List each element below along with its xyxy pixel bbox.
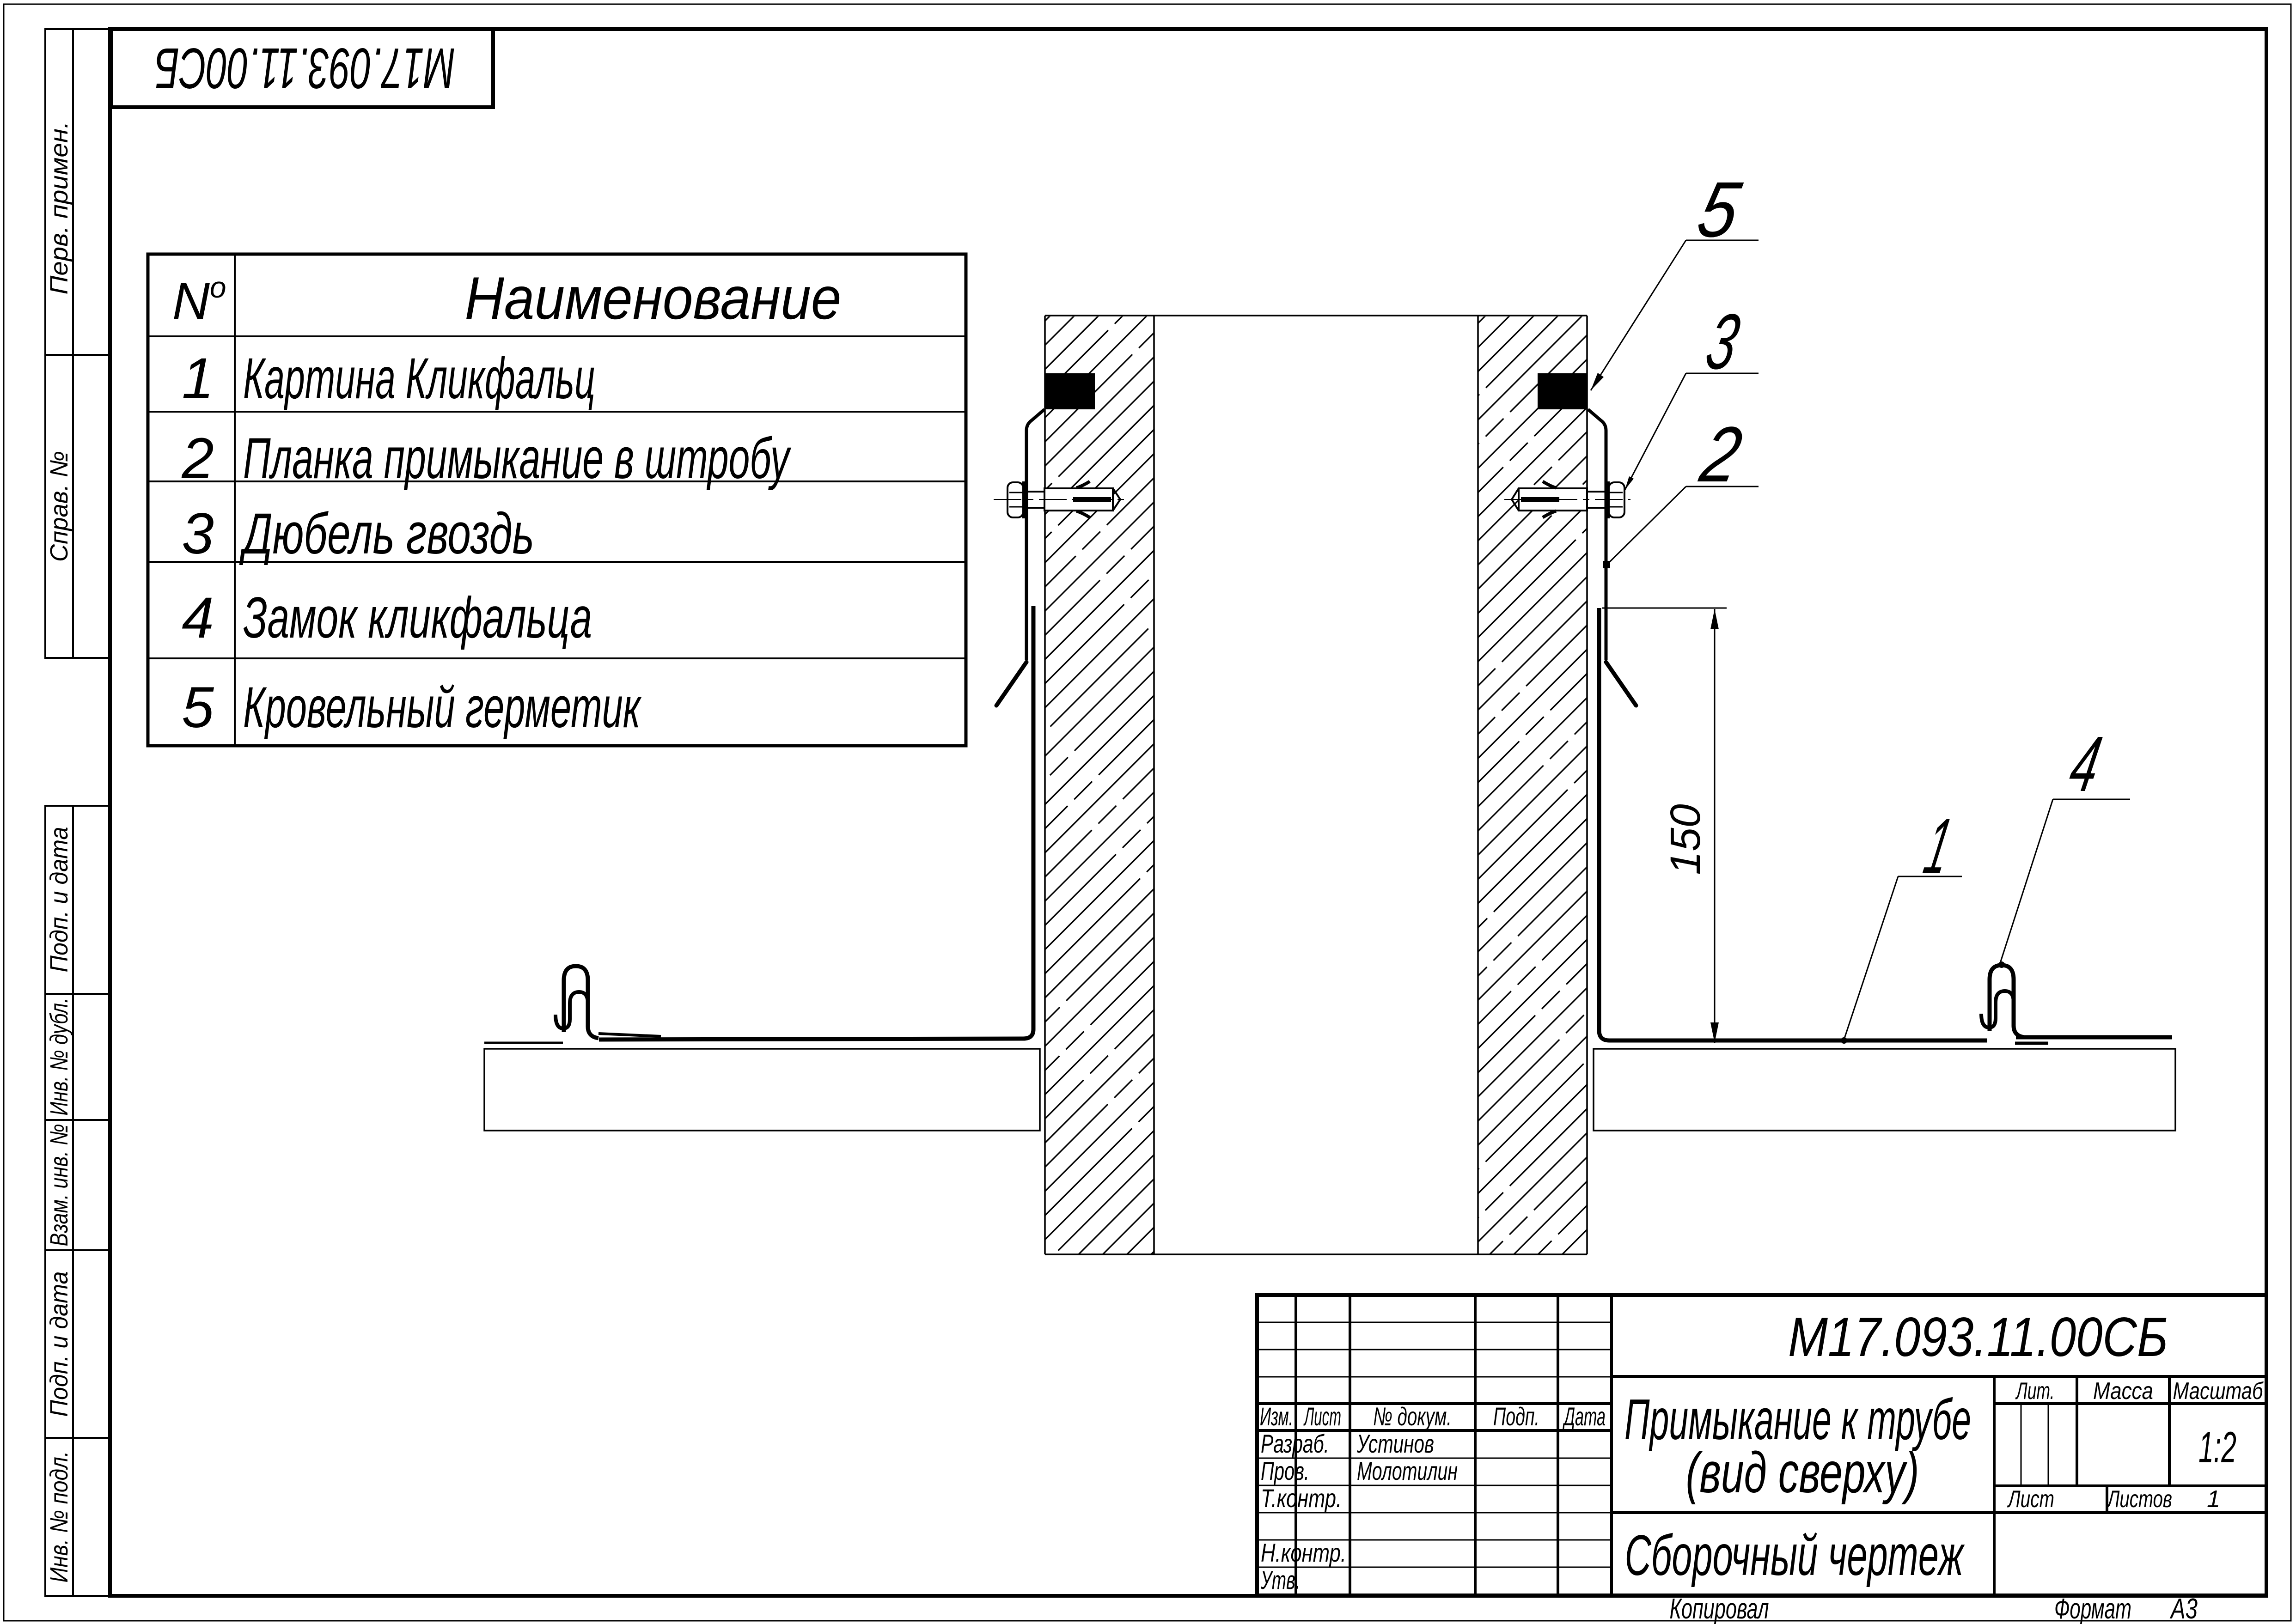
svg-text:4: 4	[182, 586, 214, 650]
svg-text:Дата: Дата	[1562, 1402, 1606, 1431]
svg-text:Масса: Масса	[2093, 1378, 2153, 1405]
svg-text:Лит.: Лит.	[2015, 1378, 2054, 1405]
svg-text:Листов: Листов	[2107, 1486, 2172, 1513]
svg-text:1:2: 1:2	[2198, 1423, 2236, 1472]
svg-text:А3: А3	[2169, 1593, 2198, 1624]
svg-text:Подп. и дата: Подп. и дата	[45, 827, 73, 973]
svg-text:Картина Кликфальц: Картина Кликфальц	[243, 347, 595, 411]
svg-text:Изм.: Изм.	[1260, 1402, 1293, 1431]
svg-text:Пров.: Пров.	[1261, 1456, 1309, 1485]
svg-text:1: 1	[2207, 1486, 2220, 1513]
svg-text:Лист: Лист	[1303, 1402, 1341, 1431]
svg-text:Подп.: Подп.	[1493, 1402, 1539, 1431]
svg-text:Взам. инв. №: Взам. инв. №	[45, 1124, 73, 1247]
svg-text:1: 1	[182, 347, 214, 411]
svg-text:Сборочный чертеж: Сборочный чертеж	[1625, 1524, 1965, 1588]
svg-text:Масштаб: Масштаб	[2173, 1378, 2264, 1405]
svg-text:Лист: Лист	[2007, 1486, 2054, 1513]
svg-text:Замок кликфальца: Замок кликфальца	[243, 586, 592, 650]
svg-text:Молотилин: Молотилин	[1357, 1456, 1458, 1485]
svg-text:М17.093.11.00СБ: М17.093.11.00СБ	[155, 36, 455, 100]
svg-text:Инв. № подл.: Инв. № подл.	[45, 1451, 73, 1583]
svg-text:Утв.: Утв.	[1260, 1565, 1300, 1594]
svg-text:Справ. №: Справ. №	[45, 451, 73, 562]
svg-text:Устинов: Устинов	[1356, 1429, 1434, 1458]
svg-text:Подп. и дата: Подп. и дата	[45, 1271, 73, 1417]
svg-text:Т.контр.: Т.контр.	[1261, 1484, 1342, 1513]
svg-text:Дюбель гвоздь: Дюбель гвоздь	[239, 502, 534, 566]
svg-text:Формат: Формат	[2054, 1593, 2131, 1624]
svg-text:Копировал: Копировал	[1670, 1593, 1769, 1624]
svg-text:3: 3	[182, 502, 214, 566]
svg-text:Инв. № дубл.: Инв. № дубл.	[45, 998, 73, 1116]
svg-text:Н.контр.: Н.контр.	[1261, 1538, 1346, 1567]
svg-text:Кровельный герметик: Кровельный герметик	[243, 675, 642, 740]
svg-text:Перв. примен.: Перв. примен.	[45, 122, 73, 295]
svg-text:М17.093.11.00СБ: М17.093.11.00СБ	[1788, 1306, 2168, 1368]
svg-text:150: 150	[1662, 804, 1709, 875]
svg-text:5: 5	[182, 675, 214, 740]
svg-text:№ докум.: № докум.	[1373, 1402, 1452, 1431]
svg-text:(вид сверху): (вид сверху)	[1686, 1441, 1919, 1505]
svg-text:Наименование: Наименование	[465, 264, 842, 332]
